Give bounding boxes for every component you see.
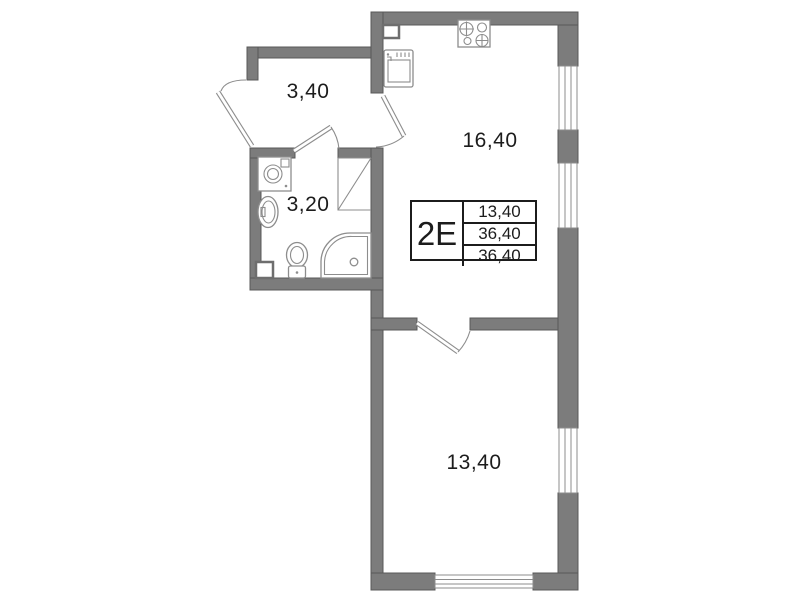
entrance-door-swing-arc bbox=[221, 80, 246, 91]
room-area-label-bedroom: 13,40 bbox=[446, 451, 501, 475]
floor-plan-drawing bbox=[0, 0, 799, 600]
unit-total-area-value: 36,40 bbox=[464, 222, 535, 244]
shaft-diagonal-marker bbox=[338, 158, 371, 210]
wall-bath-top-right bbox=[338, 148, 371, 158]
wall-right-pier bbox=[558, 130, 578, 163]
wall-hall-top bbox=[247, 47, 371, 58]
window-bedroom-bottom bbox=[435, 575, 533, 588]
window-kitchen-2 bbox=[559, 163, 577, 228]
wall-left-lower bbox=[371, 148, 383, 590]
bedroom-door bbox=[417, 323, 470, 352]
entrance-angled-wall bbox=[218, 92, 252, 146]
washing-machine-icon bbox=[258, 157, 291, 191]
unit-overall-area-value: 36,40 bbox=[464, 244, 535, 266]
bedroom-door-swing-arc bbox=[458, 331, 470, 352]
wall-bath-bottom bbox=[250, 278, 383, 290]
unit-info-table: 2E 13,40 36,40 36,40 bbox=[410, 200, 537, 261]
vent-duct-bathroom bbox=[256, 262, 273, 278]
wall-left-upper bbox=[371, 12, 383, 93]
wall-hall-left bbox=[247, 47, 258, 80]
kitchen-door-swing-arc bbox=[376, 136, 404, 147]
bathroom-sink-icon bbox=[258, 197, 278, 228]
wall-bottom-right bbox=[533, 573, 578, 590]
wall-right-b bbox=[558, 228, 578, 428]
bathroom-door-swing-arc bbox=[331, 127, 339, 149]
entrance-door bbox=[221, 80, 246, 91]
wall-right-a bbox=[558, 25, 578, 66]
wall-interior-left bbox=[371, 318, 417, 330]
room-area-label-kitchen-living: 16,40 bbox=[462, 129, 517, 153]
unit-living-area-value: 13,40 bbox=[464, 202, 535, 222]
wall-interior-right bbox=[470, 318, 558, 330]
bathroom-door bbox=[294, 127, 339, 151]
wall-bottom-left bbox=[371, 573, 435, 590]
toilet-icon bbox=[287, 243, 308, 279]
window-kitchen-1 bbox=[559, 66, 577, 130]
room-area-label-bathroom: 3,20 bbox=[287, 193, 330, 217]
room-area-label-hallway: 3,40 bbox=[287, 80, 330, 104]
stove-icon bbox=[458, 20, 490, 47]
unit-type-label: 2E bbox=[412, 202, 464, 266]
corner-bathtub-icon bbox=[321, 233, 371, 278]
kitchen-sink-icon bbox=[384, 50, 413, 87]
vent-duct-kitchen bbox=[383, 25, 399, 38]
window-bedroom-right bbox=[559, 428, 577, 493]
floor-plan: 3,40 3,20 16,40 13,40 2E 13,40 36,40 36,… bbox=[0, 0, 799, 600]
kitchen-door bbox=[376, 96, 404, 147]
